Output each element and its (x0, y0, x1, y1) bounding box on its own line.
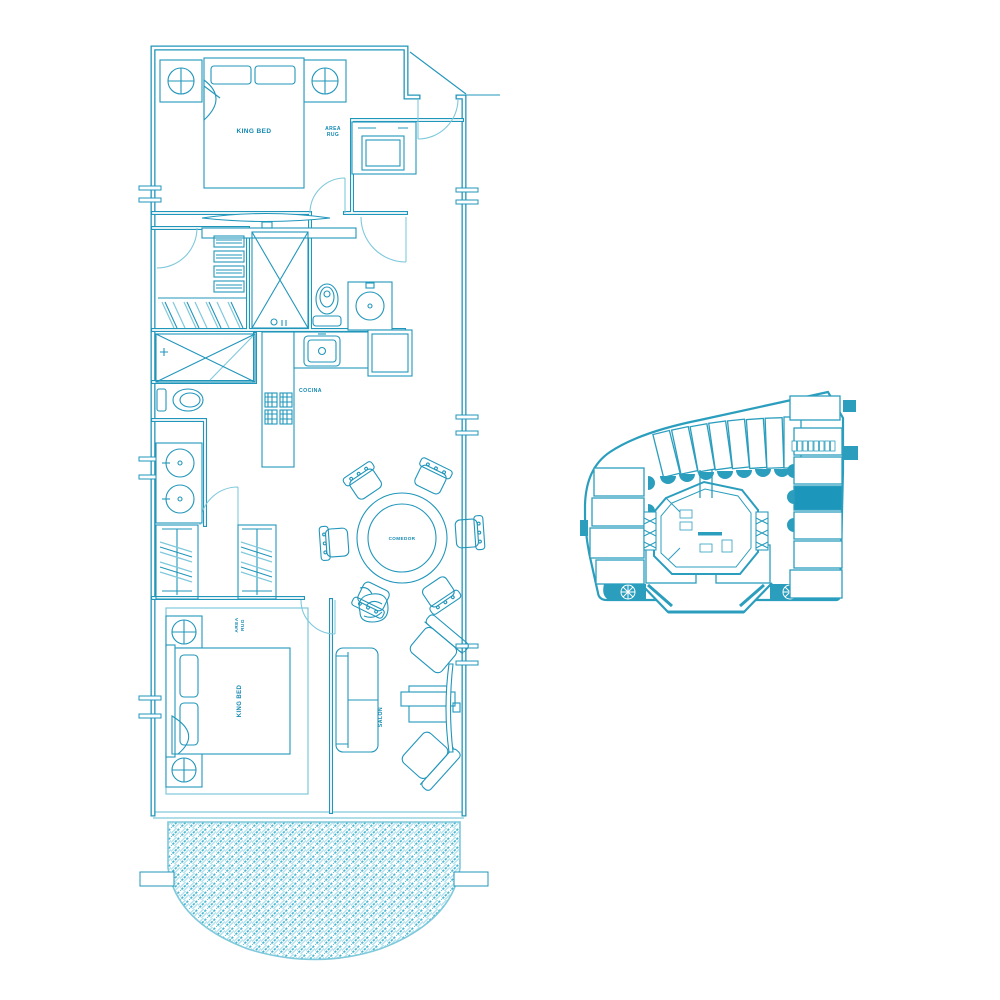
vanity-sink-icon (348, 282, 392, 330)
refrigerator-icon (368, 330, 412, 376)
keyplan-stub (843, 446, 858, 460)
room-label: KING BED (237, 684, 243, 717)
lamp-icon (172, 758, 196, 782)
dining-area: COMEDOR (319, 457, 485, 619)
dining-chair-icon (410, 457, 453, 497)
floor-plan-drawing: KING BED AREA RUG (0, 0, 1000, 1000)
lamp-icon (168, 68, 194, 94)
lamp-icon (312, 68, 338, 94)
lamp-icon (172, 620, 196, 644)
kitchen: COCINA (262, 330, 412, 467)
walkin-closet (158, 236, 246, 328)
king-bed-icon (166, 645, 290, 757)
wardrobe-icon (238, 525, 276, 599)
room-label: COCINA (299, 388, 322, 394)
keyplan-center-bay (640, 583, 772, 612)
keyplan-highlighted-unit (794, 486, 842, 510)
closet-door (157, 228, 197, 268)
room-label: RUG (327, 132, 339, 138)
dining-chair-icon (342, 461, 386, 503)
hanging-clothes-icon (158, 298, 246, 328)
dresser-tv-icon (202, 214, 356, 239)
toilet-icon (313, 284, 341, 326)
room-label: RUG (240, 619, 246, 631)
living-room: SALON (336, 588, 470, 792)
floor-plan-sheet: KING BED AREA RUG (0, 0, 1000, 1000)
king-bed-icon (204, 58, 304, 188)
keyplan-stub (843, 400, 856, 412)
keyplan-scallops-right (787, 464, 794, 532)
balcony-pier-right (454, 872, 488, 886)
dining-chair-icon (455, 515, 485, 551)
kitchen-sink-icon (304, 334, 340, 366)
shower-door (210, 336, 253, 380)
keyplan-stub (580, 520, 588, 536)
building-key-plan (580, 392, 858, 612)
room-label: KING BED (237, 128, 272, 135)
tv-icon (446, 664, 460, 752)
dining-chair-icon (418, 573, 462, 615)
bedroom1-door (310, 178, 345, 213)
bedroom-bottom: KING BED AREA RUG (166, 608, 308, 794)
room-label: SALON (378, 707, 384, 727)
main-unit-plan: KING BED AREA RUG (139, 48, 500, 960)
room-label: AREA (234, 617, 240, 632)
wardrobe-icon (156, 525, 198, 599)
balcony-terrace (140, 812, 488, 960)
kitchen-counter (262, 332, 294, 467)
hall-door (361, 217, 406, 262)
shower-icon (156, 334, 255, 382)
shower-icon (252, 232, 308, 328)
balcony-pier-left (140, 872, 174, 886)
closet-shelves-icon (214, 236, 244, 292)
bathroom-1 (252, 232, 392, 330)
room-label: COMEDOR (389, 536, 416, 541)
corner-cut-line (410, 52, 500, 95)
sliding-door-track (153, 812, 464, 818)
core-label-smudge (698, 532, 722, 536)
balcony-hatch-area (168, 822, 460, 960)
tv-cabinet-icon (352, 122, 416, 174)
double-vanity-icon (156, 443, 202, 523)
sofa-icon (336, 648, 378, 752)
toilet-icon (157, 389, 203, 411)
dining-chair-icon (319, 525, 349, 561)
wardrobes (156, 525, 276, 599)
